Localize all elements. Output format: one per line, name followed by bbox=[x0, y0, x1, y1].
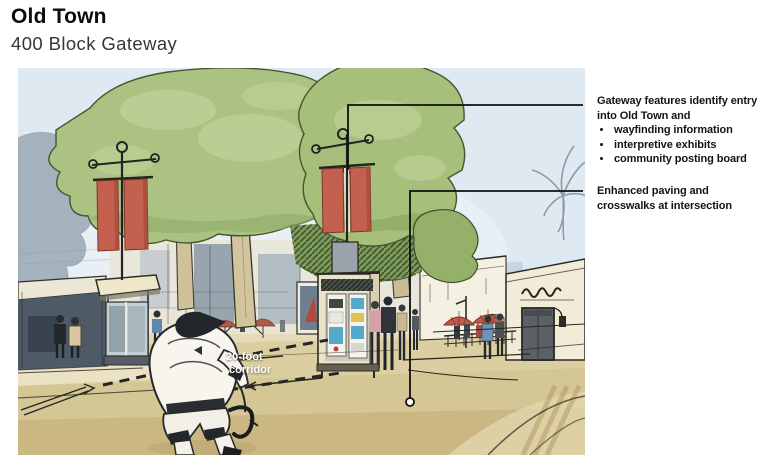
annotation-gateway-features: Gateway features identify entry into Old… bbox=[597, 94, 770, 167]
page-title: Old Town bbox=[11, 5, 107, 29]
rendering-scene bbox=[18, 68, 585, 455]
annotation-gateway-heading: Gateway features identify entry into Old… bbox=[597, 94, 770, 123]
bullet-wayfinding: wayfinding information bbox=[613, 123, 770, 138]
left-storefront-building bbox=[18, 276, 108, 370]
annotation-gateway-bullets: wayfinding information interpretive exhi… bbox=[597, 123, 770, 167]
bullet-community: community posting board bbox=[613, 152, 770, 167]
slide: Old Town 400 Block Gateway bbox=[0, 0, 770, 468]
gateway-rendering-image bbox=[18, 68, 585, 455]
corridor-dimension-label: 20-foot corridor bbox=[226, 351, 296, 376]
page-subtitle: 400 Block Gateway bbox=[11, 33, 177, 55]
annotation-enhanced-paving: Enhanced paving and crosswalks at inters… bbox=[597, 184, 770, 213]
bullet-interpretive: interpretive exhibits bbox=[613, 138, 770, 153]
